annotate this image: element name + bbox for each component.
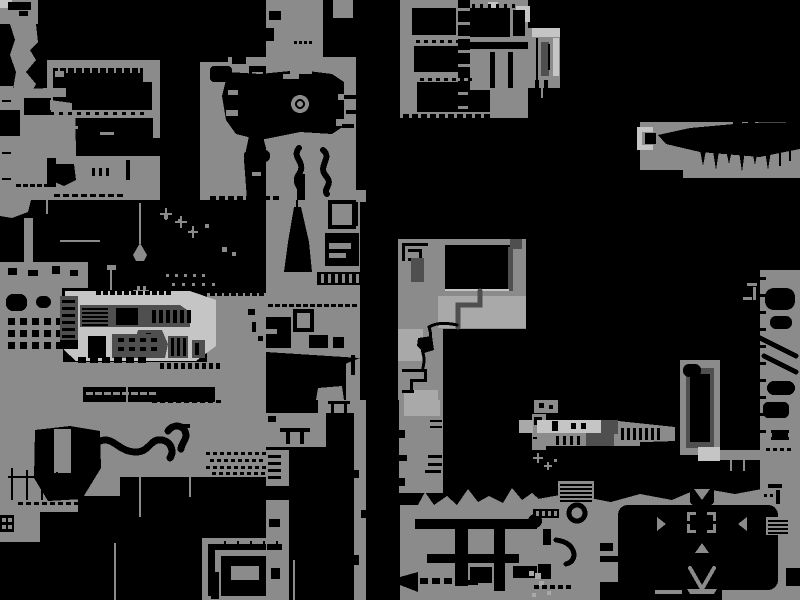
map-shape — [294, 41, 297, 44]
map-shape — [760, 345, 766, 348]
map-shape — [231, 566, 259, 580]
map-shape — [760, 311, 766, 314]
map-shape — [99, 194, 105, 197]
map-shape — [402, 390, 414, 393]
map-shape — [177, 338, 180, 356]
map-shape — [213, 452, 217, 455]
map-shape — [226, 110, 238, 116]
map-shape — [233, 472, 237, 475]
map-shape — [399, 455, 407, 461]
map-shape — [210, 293, 215, 296]
map-shape — [430, 420, 442, 422]
map-shape — [259, 459, 263, 462]
map-shape — [262, 452, 266, 455]
map-shape — [44, 330, 51, 337]
map-shape — [445, 289, 509, 291]
map-shape — [62, 328, 75, 331]
map-shape — [82, 324, 108, 326]
map-shape — [210, 196, 216, 200]
map-shape — [200, 400, 205, 403]
map-shape — [430, 114, 436, 118]
map-shape — [304, 41, 307, 44]
map-shape — [432, 40, 436, 43]
map-shape — [765, 288, 795, 310]
map-shape — [586, 433, 614, 446]
map-shape — [268, 469, 281, 472]
map-shape — [763, 402, 789, 418]
map-shape — [180, 310, 184, 323]
map-shape — [81, 194, 87, 197]
map-shape — [328, 401, 350, 404]
map-shape — [6, 294, 27, 311]
map-shape — [639, 428, 642, 440]
map-shape — [448, 40, 452, 43]
map-shape — [309, 335, 328, 348]
map-shape — [98, 68, 100, 73]
map-shape — [152, 291, 157, 295]
map-shape — [324, 304, 329, 307]
map-shape — [317, 304, 322, 307]
map-shape — [529, 571, 534, 576]
map-shape — [527, 437, 531, 439]
map-shape — [255, 196, 261, 200]
map-shape — [399, 430, 405, 438]
map-shape — [247, 472, 251, 475]
map-shape — [195, 343, 199, 355]
map-shape — [286, 432, 290, 444]
map-shape — [760, 396, 766, 399]
map-shape — [58, 68, 60, 73]
map-shape — [28, 270, 38, 276]
map-shape — [107, 265, 116, 270]
map-shape — [548, 44, 550, 70]
map-shape — [768, 528, 788, 530]
map-shape — [480, 4, 483, 8]
map-shape — [776, 494, 779, 497]
map-shape — [224, 293, 229, 296]
map-shape — [297, 174, 305, 200]
map-shape — [475, 114, 481, 118]
map-shape — [16, 184, 21, 187]
map-shape — [645, 133, 656, 144]
map-shape — [770, 316, 792, 329]
map-shape — [748, 119, 755, 125]
map-shape — [237, 541, 239, 547]
map-shape — [299, 41, 302, 44]
world-map — [0, 0, 800, 600]
map-shape — [268, 462, 281, 465]
map-shape — [238, 459, 242, 462]
map-shape — [402, 369, 427, 372]
map-shape — [245, 293, 250, 296]
map-shape — [202, 283, 205, 286]
map-shape — [468, 78, 472, 81]
map-shape — [171, 338, 174, 356]
map-shape — [536, 511, 539, 516]
map-shape — [713, 512, 716, 521]
map-shape — [420, 78, 424, 81]
map-shape — [56, 126, 78, 129]
map-shape — [771, 437, 789, 440]
map-shape — [220, 466, 224, 469]
map-shape — [88, 336, 106, 358]
map-shape — [37, 184, 42, 187]
map-shape — [252, 459, 256, 462]
map-shape — [416, 40, 420, 43]
map-shape — [460, 78, 464, 81]
map-shape — [152, 400, 157, 403]
map-shape — [570, 436, 573, 445]
map-shape — [62, 335, 75, 338]
map-shape — [10, 24, 38, 95]
map-shape — [104, 112, 108, 115]
map-shape — [768, 532, 788, 534]
map-shape — [166, 310, 170, 323]
map-shape — [496, 4, 499, 8]
map-shape — [2, 100, 11, 102]
map-shape — [99, 168, 102, 176]
map-shape — [34, 502, 39, 505]
map-shape — [20, 342, 27, 349]
map-shape — [103, 291, 108, 295]
map-shape — [458, 64, 470, 67]
map-shape — [269, 519, 280, 527]
map-shape — [206, 452, 210, 455]
map-shape — [151, 338, 157, 342]
map-shape — [690, 374, 710, 442]
map-shape — [187, 310, 191, 323]
map-shape — [90, 68, 92, 73]
map-shape — [268, 455, 281, 458]
map-shape — [8, 318, 15, 325]
map-shape — [554, 459, 557, 462]
map-shape — [59, 112, 63, 115]
map-shape — [448, 114, 454, 118]
map-shape — [404, 400, 440, 416]
map-shape — [645, 428, 648, 440]
map-shape — [77, 112, 81, 115]
map-shape — [19, 11, 28, 16]
map-shape — [764, 494, 767, 497]
map-shape — [117, 291, 122, 295]
map-shape — [417, 82, 462, 112]
map-shape — [202, 274, 205, 277]
map-shape — [331, 404, 334, 413]
map-shape — [129, 347, 135, 351]
map-shape — [768, 520, 788, 522]
map-shape — [66, 502, 71, 505]
map-shape — [770, 494, 773, 497]
map-shape — [560, 484, 592, 486]
map-shape — [32, 342, 39, 349]
map-shape — [212, 472, 216, 475]
map-shape — [468, 580, 478, 585]
map-shape — [651, 428, 654, 440]
map-shape — [273, 196, 279, 200]
map-shape — [544, 80, 548, 88]
map-shape — [421, 114, 427, 118]
map-shape — [303, 304, 308, 307]
map-shape — [62, 314, 75, 317]
map-shape — [178, 219, 182, 223]
map-shape — [8, 342, 15, 349]
map-shape — [82, 312, 108, 314]
map-shape — [760, 328, 766, 331]
map-shape — [246, 196, 252, 200]
map-shape — [23, 184, 28, 187]
map-shape — [560, 496, 592, 498]
map-shape — [532, 28, 560, 37]
map-shape — [428, 455, 442, 458]
map-shape — [558, 585, 563, 589]
map-shape — [26, 502, 31, 505]
screen: { "canvas": { "width": 800, "height": 60… — [0, 0, 800, 600]
map-shape — [768, 484, 782, 488]
map-shape — [151, 347, 157, 351]
map-shape — [430, 426, 442, 428]
map-shape — [143, 64, 155, 82]
map-shape — [241, 452, 245, 455]
map-shape — [24, 98, 51, 115]
map-shape — [174, 363, 178, 369]
map-shape — [345, 304, 350, 307]
map-shape — [600, 556, 618, 562]
map-shape — [282, 304, 287, 307]
map-shape — [458, 50, 470, 53]
map-shape — [92, 168, 95, 176]
map-shape — [297, 101, 303, 107]
map-shape — [458, 36, 470, 39]
map-shape — [543, 529, 551, 545]
map-shape — [112, 334, 164, 358]
map-shape — [54, 429, 71, 473]
map-shape — [50, 112, 54, 115]
map-shape — [786, 568, 800, 586]
map-shape — [130, 68, 132, 73]
map-shape — [432, 578, 440, 584]
map-shape — [275, 304, 280, 307]
map-shape — [289, 304, 294, 307]
map-shape — [54, 194, 60, 197]
map-shape — [280, 428, 310, 432]
map-shape — [86, 112, 90, 115]
map-shape — [164, 215, 168, 219]
map-shape — [428, 463, 442, 466]
map-shape — [149, 392, 156, 395]
map-shape — [240, 472, 244, 475]
map-shape — [222, 247, 227, 252]
map-shape — [252, 172, 261, 176]
map-shape — [621, 428, 624, 440]
map-shape — [760, 379, 766, 382]
map-shape — [0, 362, 237, 387]
map-shape — [184, 400, 189, 403]
map-shape — [18, 502, 23, 505]
map-shape — [542, 511, 545, 516]
map-shape — [316, 386, 344, 400]
map-shape — [601, 420, 618, 434]
map-shape — [328, 274, 331, 283]
map-shape — [439, 114, 445, 118]
map-shape — [140, 347, 146, 351]
map-shape — [72, 194, 78, 197]
map-shape — [113, 112, 117, 115]
map-shape — [159, 291, 164, 295]
map-shape — [331, 304, 336, 307]
map-shape — [271, 568, 280, 579]
map-shape — [232, 57, 246, 64]
map-shape — [571, 423, 576, 429]
map-shape — [44, 342, 51, 349]
map-shape — [466, 114, 472, 118]
map-shape — [62, 321, 75, 324]
map-shape — [118, 347, 124, 351]
map-shape — [32, 330, 39, 337]
map-shape — [425, 470, 441, 473]
map-shape — [231, 293, 236, 296]
map-shape — [252, 293, 257, 296]
map-shape — [231, 459, 235, 462]
map-shape — [228, 196, 234, 200]
map-shape — [309, 41, 312, 44]
map-shape — [188, 363, 192, 369]
map-shape — [208, 400, 213, 403]
map-shape — [8, 2, 31, 10]
map-shape — [760, 430, 766, 433]
map-shape — [219, 196, 225, 200]
map-shape — [329, 253, 346, 258]
map-shape — [354, 470, 359, 478]
map-shape — [95, 112, 99, 115]
map-shape — [170, 424, 190, 428]
map-shape — [539, 403, 544, 408]
map-shape — [126, 160, 130, 180]
map-shape — [335, 274, 338, 283]
map-shape — [8, 525, 12, 529]
map-shape — [356, 274, 359, 283]
map-shape — [444, 578, 452, 584]
map-shape — [181, 363, 185, 369]
map-shape — [560, 492, 592, 494]
map-shape — [131, 112, 135, 115]
map-shape — [411, 258, 424, 282]
map-shape — [415, 519, 537, 529]
map-shape — [8, 268, 17, 275]
map-shape — [655, 594, 715, 600]
map-shape — [192, 283, 195, 286]
map-shape — [184, 274, 187, 277]
map-shape — [566, 585, 571, 589]
map-shape — [771, 430, 789, 433]
map-shape — [96, 291, 101, 295]
map-shape — [116, 308, 138, 325]
map-shape — [166, 291, 171, 295]
map-shape — [114, 68, 116, 73]
map-shape — [166, 274, 169, 277]
map-shape — [533, 437, 537, 439]
map-shape — [250, 541, 252, 547]
map-shape — [349, 274, 352, 283]
map-shape — [637, 131, 642, 146]
map-shape — [68, 112, 72, 115]
map-shape — [191, 230, 194, 233]
map-shape — [563, 436, 566, 445]
map-shape — [30, 184, 35, 187]
map-shape — [129, 338, 135, 342]
map-shape — [402, 243, 428, 246]
map-shape — [102, 357, 110, 363]
map-shape — [248, 466, 252, 469]
map-shape — [258, 336, 263, 341]
map-shape — [537, 420, 602, 433]
map-shape — [117, 194, 123, 197]
map-shape — [534, 400, 558, 413]
map-shape — [138, 68, 140, 73]
map-shape — [698, 447, 720, 461]
map-shape — [0, 110, 20, 136]
map-shape — [106, 168, 109, 176]
map-shape — [550, 585, 555, 589]
map-shape — [66, 68, 68, 73]
map-shape — [427, 554, 519, 563]
map-shape — [456, 40, 460, 43]
map-shape — [82, 316, 108, 318]
map-shape — [175, 274, 178, 277]
map-shape — [124, 291, 129, 295]
map-shape — [683, 364, 701, 377]
map-shape — [283, 74, 299, 79]
map-shape — [780, 448, 784, 451]
map-shape — [182, 283, 185, 286]
map-shape — [42, 502, 47, 505]
map-shape — [269, 11, 281, 20]
map-shape — [399, 478, 405, 486]
map-shape — [521, 437, 525, 439]
map-shape — [618, 505, 778, 590]
map-shape — [245, 459, 249, 462]
map-shape — [440, 40, 444, 43]
map-shape — [542, 585, 547, 589]
map-shape — [472, 4, 475, 8]
map-shape — [168, 400, 173, 403]
map-shape — [325, 233, 359, 266]
map-shape — [0, 200, 31, 218]
map-shape — [687, 512, 690, 521]
map-shape — [452, 78, 456, 81]
map-shape — [2, 518, 6, 522]
map-viewport — [0, 0, 800, 600]
map-shape — [118, 338, 124, 342]
map-shape — [58, 502, 63, 505]
map-shape — [200, 57, 228, 62]
map-shape — [428, 78, 432, 81]
map-shape — [344, 404, 347, 413]
map-shape — [743, 297, 752, 300]
map-shape — [457, 114, 463, 118]
map-shape — [211, 572, 219, 599]
map-shape — [248, 309, 255, 315]
map-shape — [266, 0, 323, 57]
map-shape — [508, 52, 513, 88]
map-shape — [62, 307, 75, 310]
map-shape — [122, 68, 124, 73]
map-shape — [535, 573, 541, 579]
map-shape — [600, 582, 655, 600]
map-shape — [333, 0, 353, 18]
map-shape — [554, 511, 557, 516]
map-shape — [513, 10, 525, 36]
map-shape — [20, 330, 27, 337]
